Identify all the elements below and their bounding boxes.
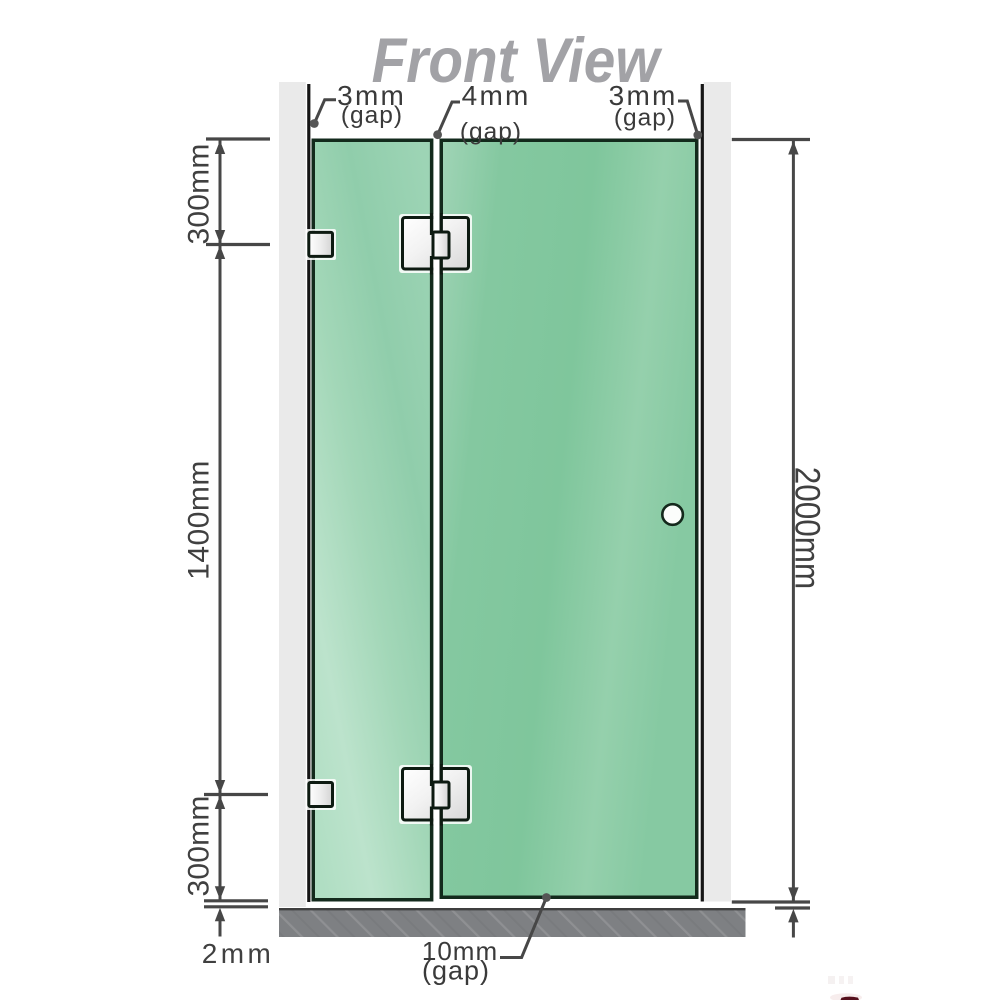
svg-text:(gap): (gap) <box>614 105 676 132</box>
svg-text:300mm: 300mm <box>183 143 216 244</box>
svg-text:4mm: 4mm <box>462 80 531 111</box>
svg-text:(gap): (gap) <box>460 119 522 146</box>
svg-text:(gap): (gap) <box>341 102 403 129</box>
svg-text:2mm: 2mm <box>202 938 274 969</box>
svg-text:2000mm: 2000mm <box>787 467 826 590</box>
svg-text:(gap): (gap) <box>422 956 490 986</box>
svg-text:1400mm: 1400mm <box>183 460 216 580</box>
svg-text:300mm: 300mm <box>183 795 216 896</box>
